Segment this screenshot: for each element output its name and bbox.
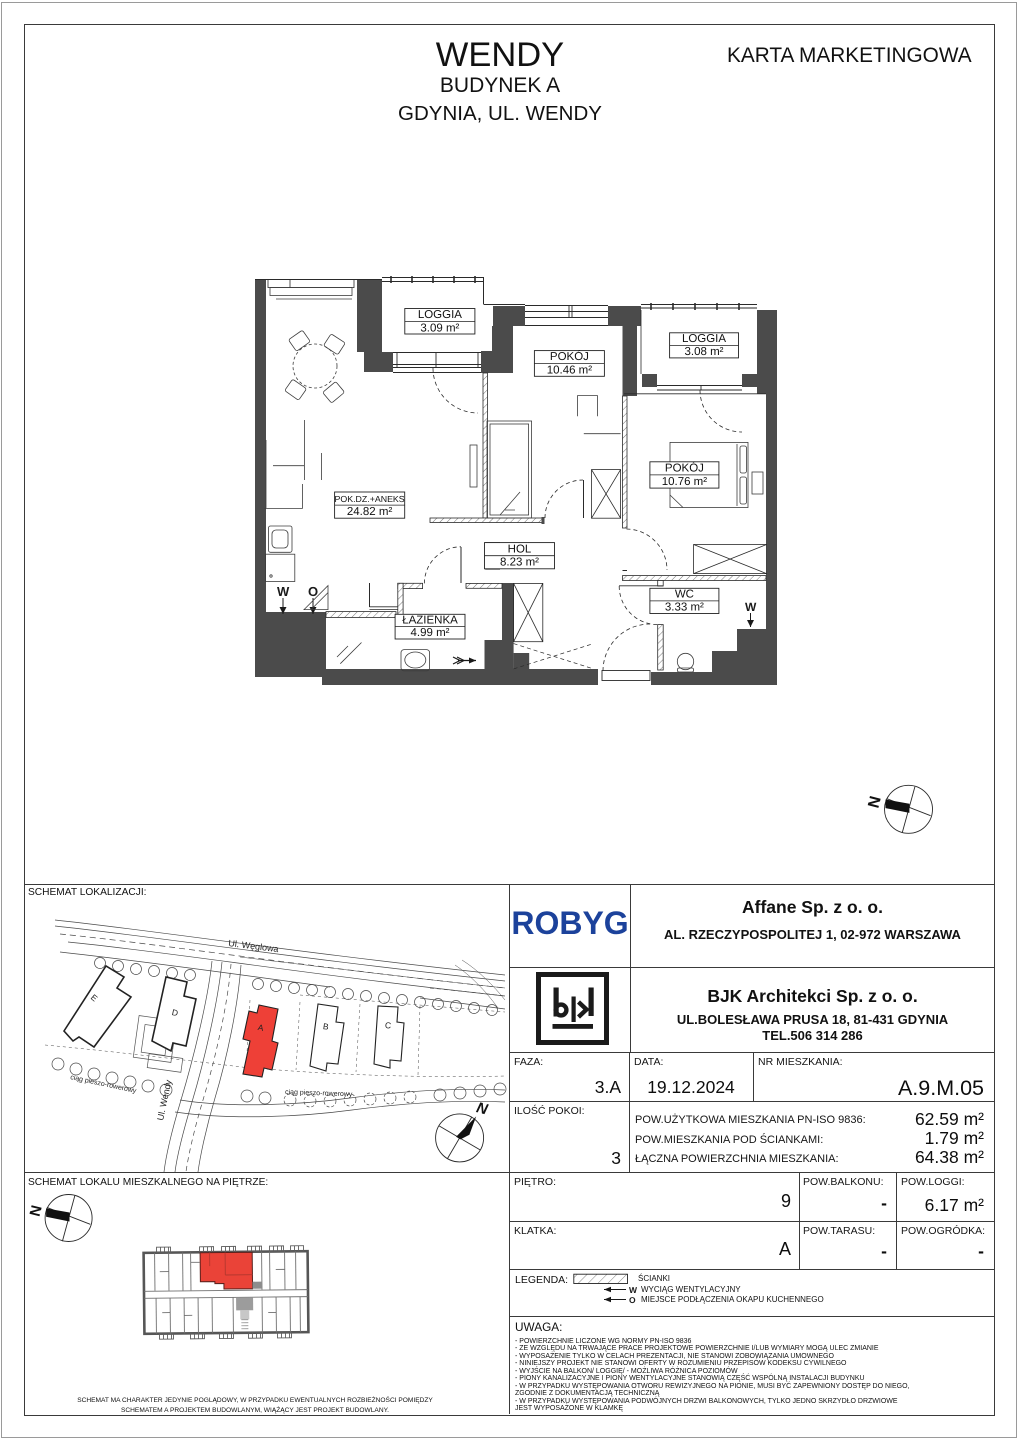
svg-text:C: C — [385, 1020, 392, 1030]
svg-text:N: N — [865, 795, 884, 810]
svg-text:O: O — [629, 1295, 636, 1305]
svg-text:3.09 m²: 3.09 m² — [420, 322, 459, 334]
svg-text:WC: WC — [675, 589, 694, 601]
svg-text:N: N — [475, 1099, 491, 1118]
svg-text:24.82 m²: 24.82 m² — [347, 506, 393, 518]
svg-text:3.08 m²: 3.08 m² — [685, 346, 724, 358]
svg-text:POKÓJ: POKÓJ — [550, 350, 589, 363]
svg-text:W: W — [745, 600, 757, 614]
svg-text:3.33 m²: 3.33 m² — [665, 602, 704, 614]
svg-text:ŁAZIENKA: ŁAZIENKA — [402, 614, 458, 626]
svg-text:10.46 m²: 10.46 m² — [547, 364, 593, 376]
svg-text:Ul. Wendy: Ul. Wendy — [155, 1078, 173, 1121]
svg-text:W: W — [629, 1285, 638, 1295]
svg-text:LOGGIA: LOGGIA — [418, 309, 462, 321]
svg-text:POK.DZ.+ANEKS: POK.DZ.+ANEKS — [335, 494, 405, 504]
svg-text:4.99 m²: 4.99 m² — [411, 627, 450, 639]
svg-text:HOL: HOL — [508, 543, 532, 555]
svg-text:8.23 m²: 8.23 m² — [500, 557, 539, 569]
svg-text:10.76 m²: 10.76 m² — [662, 476, 708, 488]
svg-text:W: W — [277, 584, 290, 599]
svg-text:N: N — [27, 1204, 46, 1219]
svg-text:POKÓJ: POKÓJ — [665, 462, 704, 475]
svg-text:ciąg pieszo-rowerowy: ciąg pieszo-rowerowy — [285, 1088, 353, 1098]
svg-text:Ul. Węglowa: Ul. Węglowa — [228, 938, 279, 954]
svg-text:LOGGIA: LOGGIA — [682, 333, 726, 345]
